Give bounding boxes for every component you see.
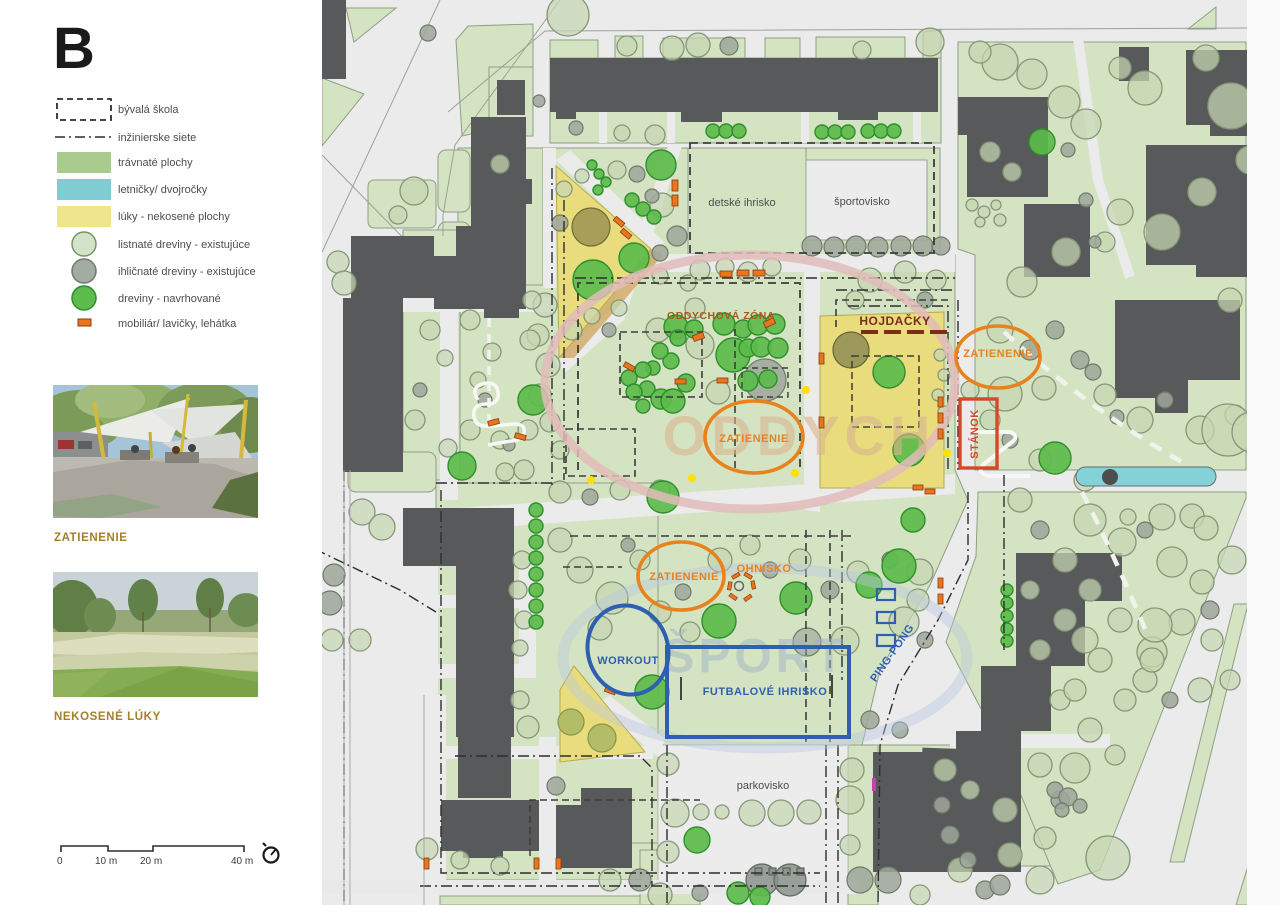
svg-text:WORKOUT: WORKOUT xyxy=(597,655,659,667)
svg-text:ihličnaté dreviny - existujúce: ihličnaté dreviny - existujúce xyxy=(118,266,256,278)
svg-text:parkovisko: parkovisko xyxy=(737,780,790,792)
svg-text:ZATIENENIE: ZATIENENIE xyxy=(54,532,128,544)
svg-text:bývalá škola: bývalá škola xyxy=(118,104,179,116)
svg-text:STÁNOK: STÁNOK xyxy=(968,409,981,458)
svg-text:ZATIENENIE: ZATIENENIE xyxy=(649,571,719,583)
svg-text:trávnaté plochy: trávnaté plochy xyxy=(118,157,193,169)
svg-text:ODDYCHOVÁ ZÓNA: ODDYCHOVÁ ZÓNA xyxy=(667,309,775,322)
svg-text:FUTBALOVÉ IHRISKO: FUTBALOVÉ IHRISKO xyxy=(703,685,828,698)
svg-text:listnaté dreviny - existujúce: listnaté dreviny - existujúce xyxy=(118,239,250,251)
svg-text:ZATIENENIE: ZATIENENIE xyxy=(963,348,1033,360)
svg-text:20 m: 20 m xyxy=(140,856,162,867)
svg-text:športovisko: športovisko xyxy=(834,196,890,208)
svg-text:detské ihrisko: detské ihrisko xyxy=(708,197,775,209)
svg-text:lúky - nekosené plochy: lúky - nekosené plochy xyxy=(118,211,230,223)
svg-text:inžinierske siete: inžinierske siete xyxy=(118,132,196,144)
svg-text:HOJDAČKY: HOJDAČKY xyxy=(859,313,930,328)
svg-text:B: B xyxy=(53,16,95,81)
svg-text:ŠPORT: ŠPORT xyxy=(662,628,847,683)
svg-text:dreviny - navrhované: dreviny - navrhované xyxy=(118,293,221,305)
svg-text:0: 0 xyxy=(57,856,63,867)
svg-text:40 m: 40 m xyxy=(231,856,253,867)
svg-text:10 m: 10 m xyxy=(95,856,117,867)
svg-text:letničky/ dvojročky: letničky/ dvojročky xyxy=(118,184,208,196)
svg-text:NEKOSENÉ LÚKY: NEKOSENÉ LÚKY xyxy=(54,710,161,723)
svg-text:mobiliár/ lavičky, lehátka: mobiliár/ lavičky, lehátka xyxy=(118,318,237,330)
svg-text:ZATIENENIE: ZATIENENIE xyxy=(719,433,789,445)
